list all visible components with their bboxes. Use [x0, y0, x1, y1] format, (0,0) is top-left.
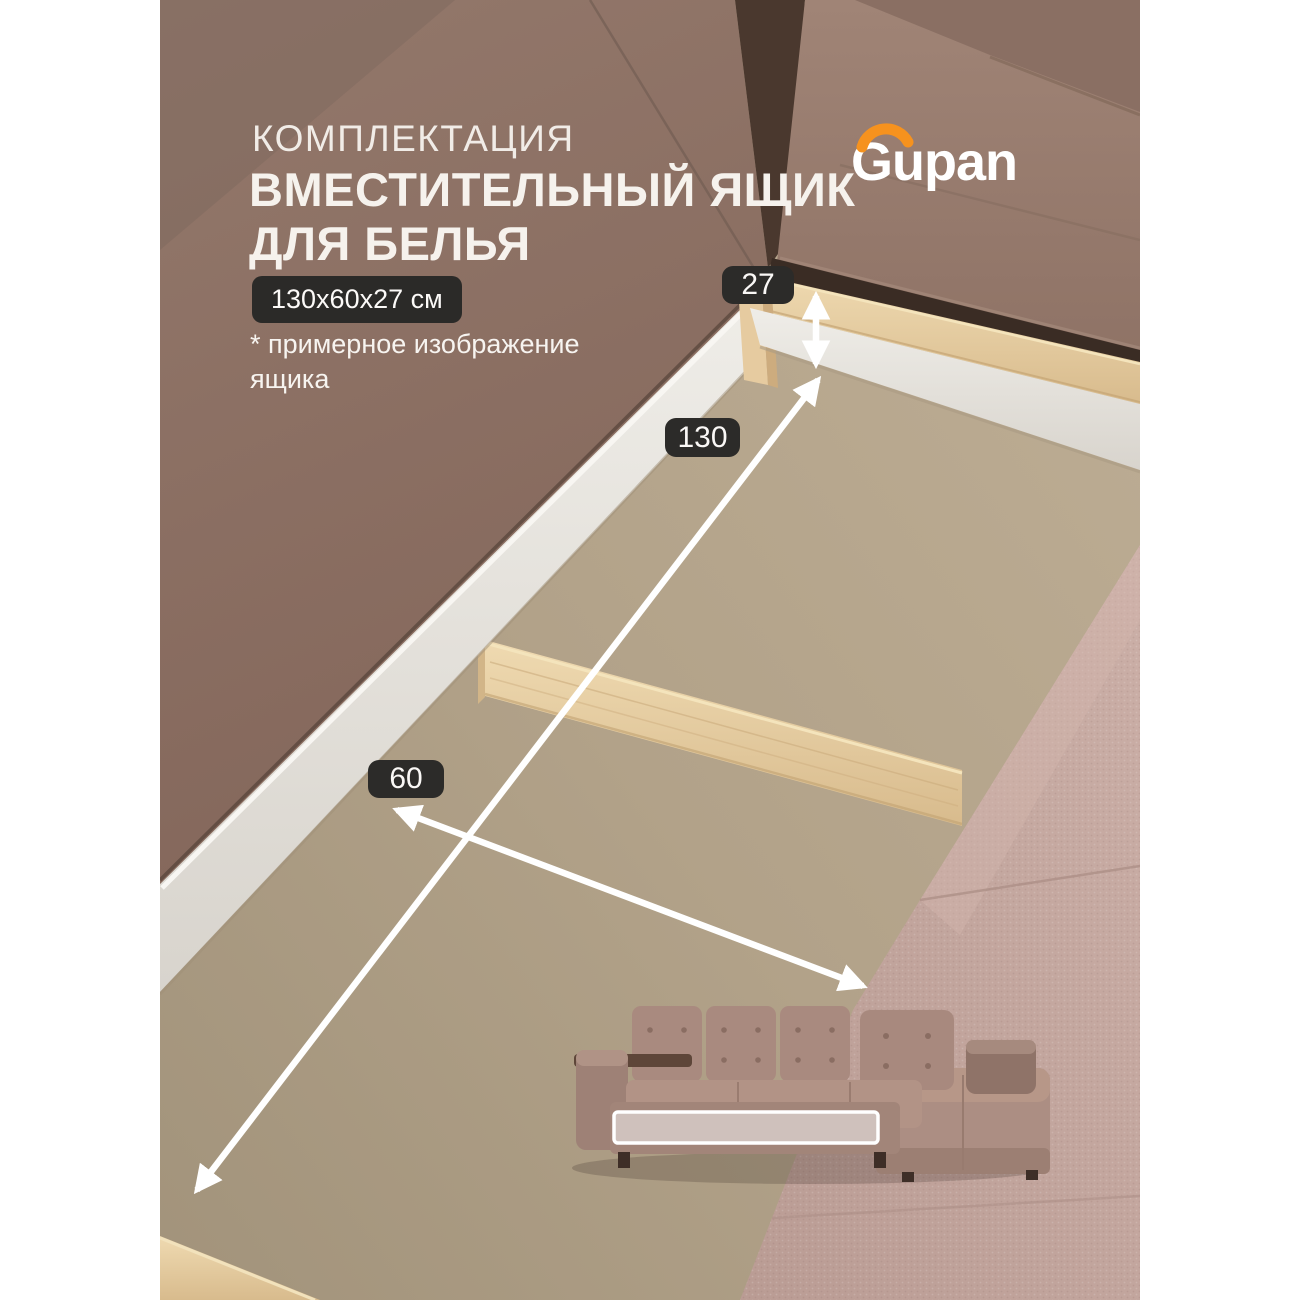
brand-logo: Gupan — [851, 130, 1017, 194]
size-badge: 130x60x27 см — [252, 276, 462, 323]
product-title: ВМЕСТИТЕЛЬНЫЙ ЯЩИК ДЛЯ БЕЛЬЯ — [249, 163, 855, 271]
kicker-text: КОМПЛЕКТАЦИЯ — [252, 118, 575, 160]
depth-badge: 60 — [368, 760, 444, 798]
product-card: КОМПЛЕКТАЦИЯ ВМЕСТИТЕЛЬНЫЙ ЯЩИК ДЛЯ БЕЛЬ… — [0, 0, 1300, 1300]
footnote: * примерное изображение ящика — [250, 327, 580, 397]
product-title-line2: ДЛЯ БЕЛЬЯ — [249, 217, 855, 271]
footnote-line2: ящика — [250, 362, 580, 397]
thumbnail-back-cushions — [632, 1006, 954, 1090]
length-badge: 130 — [665, 418, 740, 457]
footnote-line1: * примерное изображение — [250, 327, 580, 362]
product-title-line1: ВМЕСТИТЕЛЬНЫЙ ЯЩИК — [249, 163, 855, 217]
logo-arc-icon — [854, 117, 914, 153]
drawer-highlight — [614, 1112, 878, 1143]
height-badge: 27 — [722, 266, 794, 304]
